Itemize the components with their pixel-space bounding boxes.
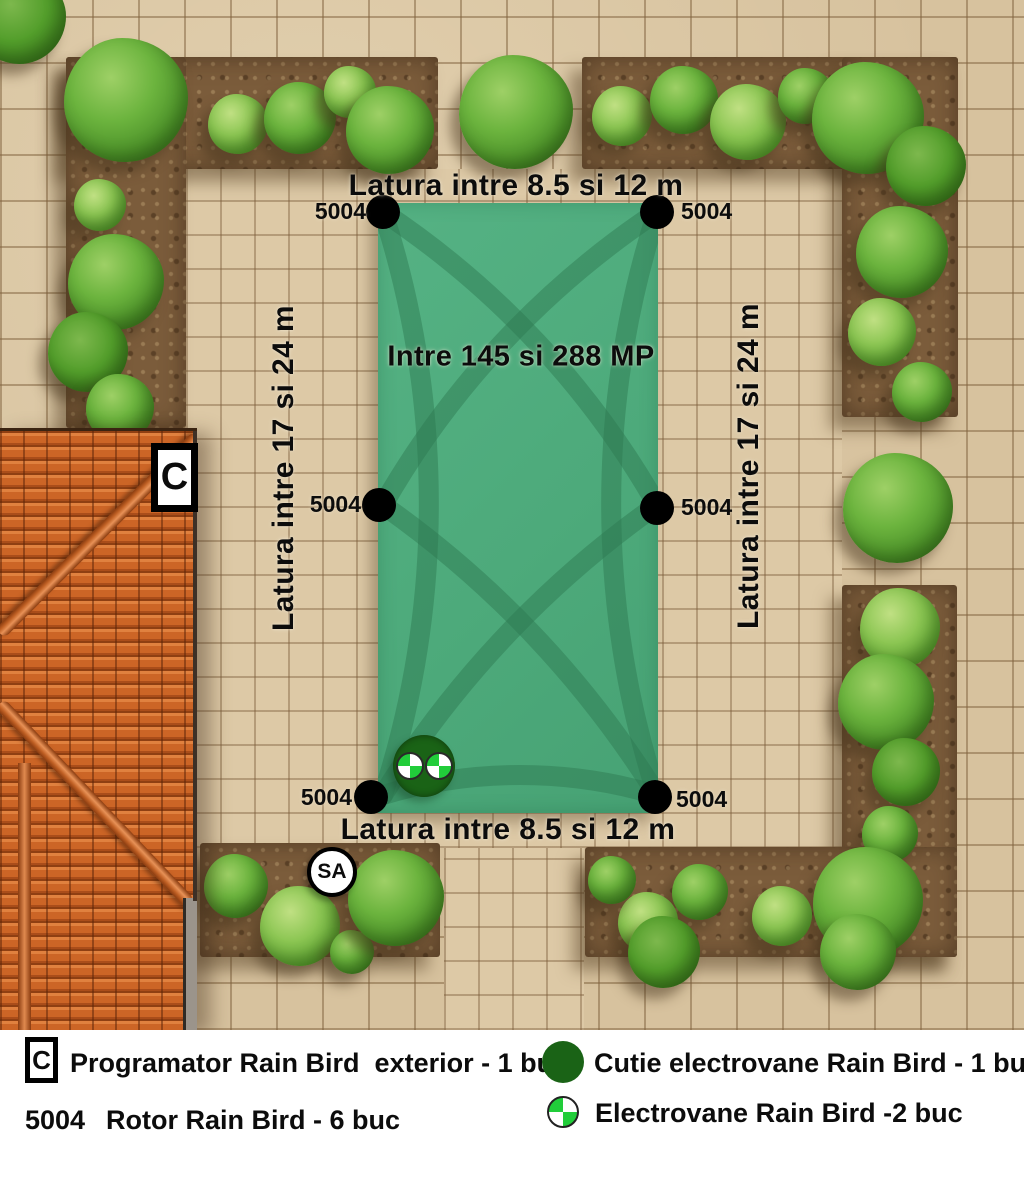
rotor-label: 5004 <box>676 786 727 813</box>
legend-label-electrovane: Electrovane Rain Bird -2 buc <box>595 1098 963 1129</box>
bush <box>820 914 896 990</box>
rotor-dot-mid-right <box>640 491 674 525</box>
bush <box>0 0 66 64</box>
south-walkway-paving <box>444 848 584 1030</box>
area-label: Intre 145 si 288 MP <box>387 341 654 374</box>
dimension-label-top: Latura intre 8.5 si 12 m <box>349 169 684 203</box>
legend-controller-box-letter: C <box>32 1045 51 1076</box>
rotor-label: 5004 <box>301 784 352 811</box>
house-roof <box>0 428 197 1030</box>
garden-plan: 5004 5004 5004 5004 5004 5004 C SA Latur… <box>0 0 1024 1030</box>
legend-label-programator: Programator Rain Bird exterior - 1 buc <box>70 1048 568 1079</box>
sprinkler-coverage-arcs <box>378 203 658 813</box>
rotor-dot-bottom-left <box>354 780 388 814</box>
roof-valley <box>18 763 31 1030</box>
legend-rotor-code: 5004 <box>25 1105 85 1136</box>
legend-valve-box-icon <box>542 1041 584 1083</box>
electrovalve-icon <box>396 752 424 780</box>
house-wall <box>183 898 197 1030</box>
legend-controller-box-icon: C <box>25 1037 58 1083</box>
rotor-label: 5004 <box>681 494 732 521</box>
lawn <box>378 203 658 813</box>
legend: C Programator Rain Bird exterior - 1 buc… <box>0 1030 1024 1200</box>
legend-label-cutie: Cutie electrovane Rain Bird - 1 buc <box>594 1048 1024 1079</box>
irrigation-plan-page: 5004 5004 5004 5004 5004 5004 C SA Latur… <box>0 0 1024 1200</box>
bush <box>843 453 953 563</box>
rotor-label: 5004 <box>681 198 732 225</box>
sa-marker: SA <box>307 847 357 897</box>
dimension-label-right: Latura intre 17 si 24 m <box>732 303 766 629</box>
bush <box>459 55 573 169</box>
dimension-label-left: Latura intre 17 si 24 m <box>267 305 301 631</box>
controller-marker: C <box>151 443 198 512</box>
dimension-label-bottom: Latura intre 8.5 si 12 m <box>341 813 676 847</box>
controller-marker-label: C <box>161 456 188 499</box>
valve-box <box>393 735 455 797</box>
rotor-label: 5004 <box>310 491 361 518</box>
bush <box>628 916 700 988</box>
legend-label-rotor: Rotor Rain Bird - 6 buc <box>106 1105 400 1136</box>
rotor-dot-mid-left <box>362 488 396 522</box>
sa-marker-label: SA <box>317 860 346 884</box>
electrovalve-icon <box>425 752 453 780</box>
legend-electrovalve-icon <box>547 1096 579 1128</box>
rotor-dot-bottom-right <box>638 780 672 814</box>
